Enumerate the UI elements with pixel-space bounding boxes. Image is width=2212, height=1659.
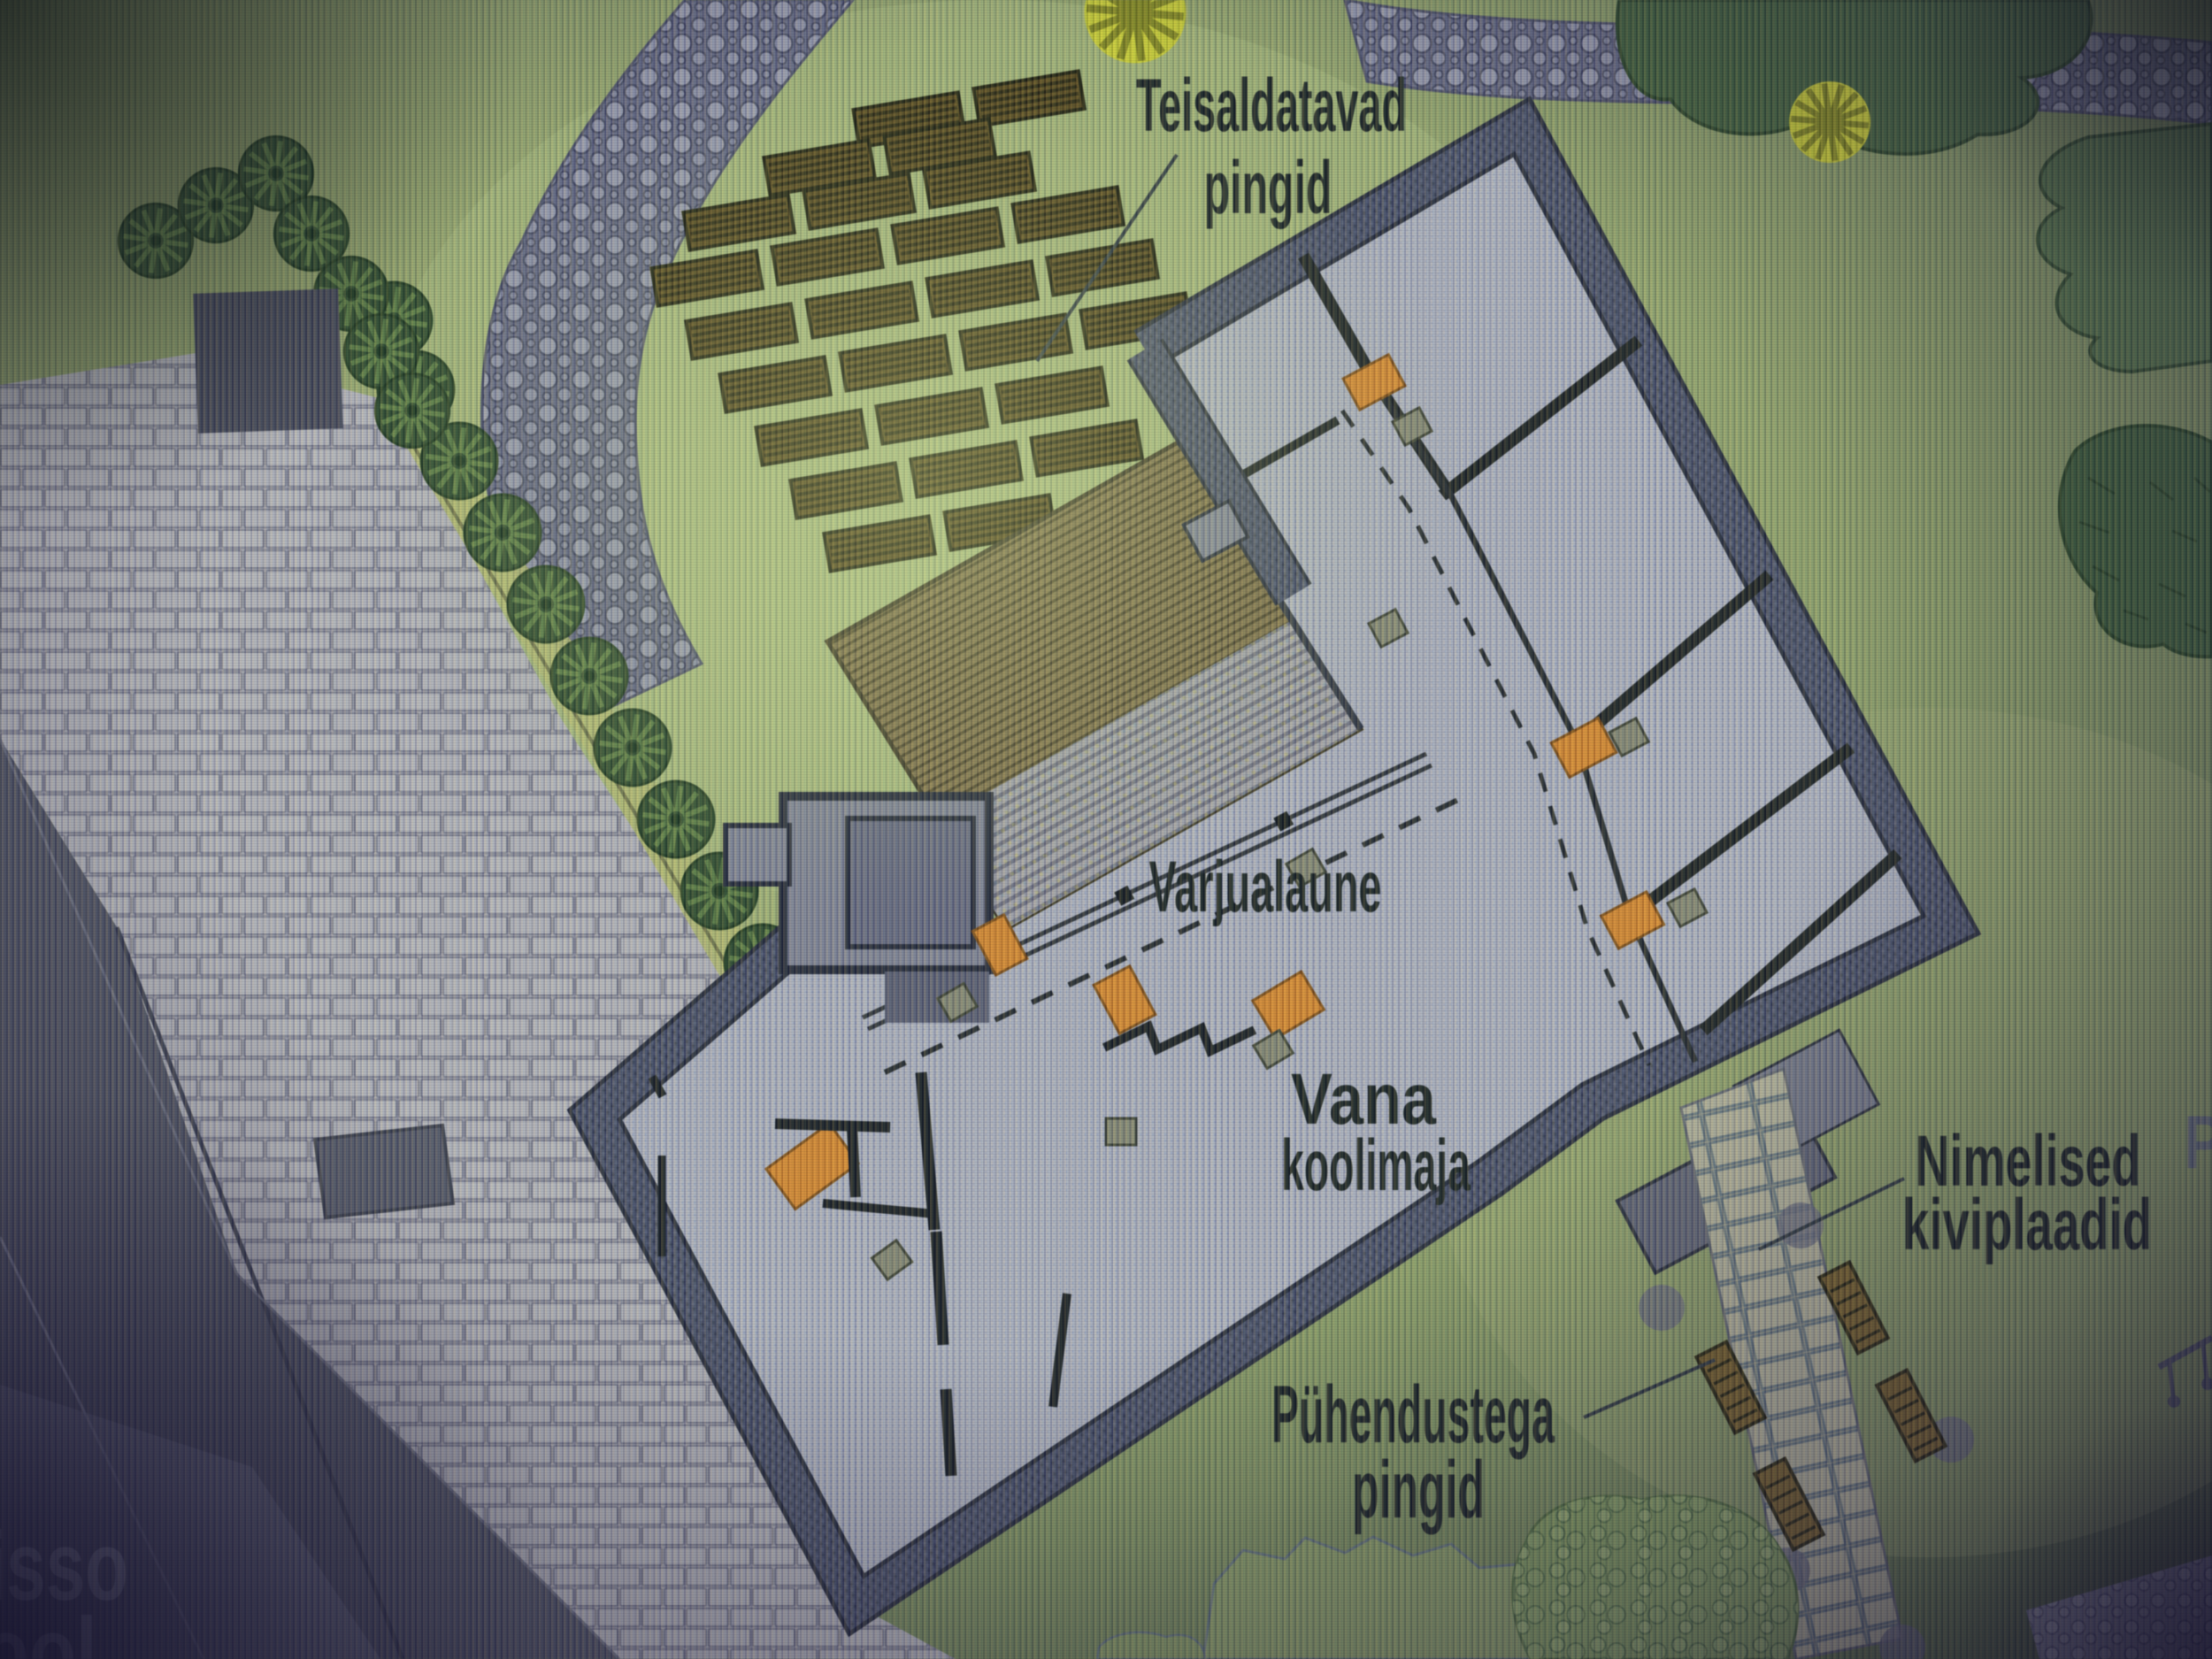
svg-text:kiviplaadid: kiviplaadid — [1902, 1185, 2152, 1265]
svg-text:P: P — [2184, 1101, 2212, 1185]
svg-text:pingid: pingid — [1352, 1445, 1485, 1535]
svg-text:ool: ool — [0, 1598, 97, 1659]
svg-text:koolimaja: koolimaja — [1281, 1125, 1471, 1206]
svg-text:pingid: pingid — [1204, 146, 1333, 229]
svg-text:Varjualaune: Varjualaune — [1149, 847, 1382, 927]
svg-text:Teisaldatavad: Teisaldatavad — [1136, 64, 1407, 147]
